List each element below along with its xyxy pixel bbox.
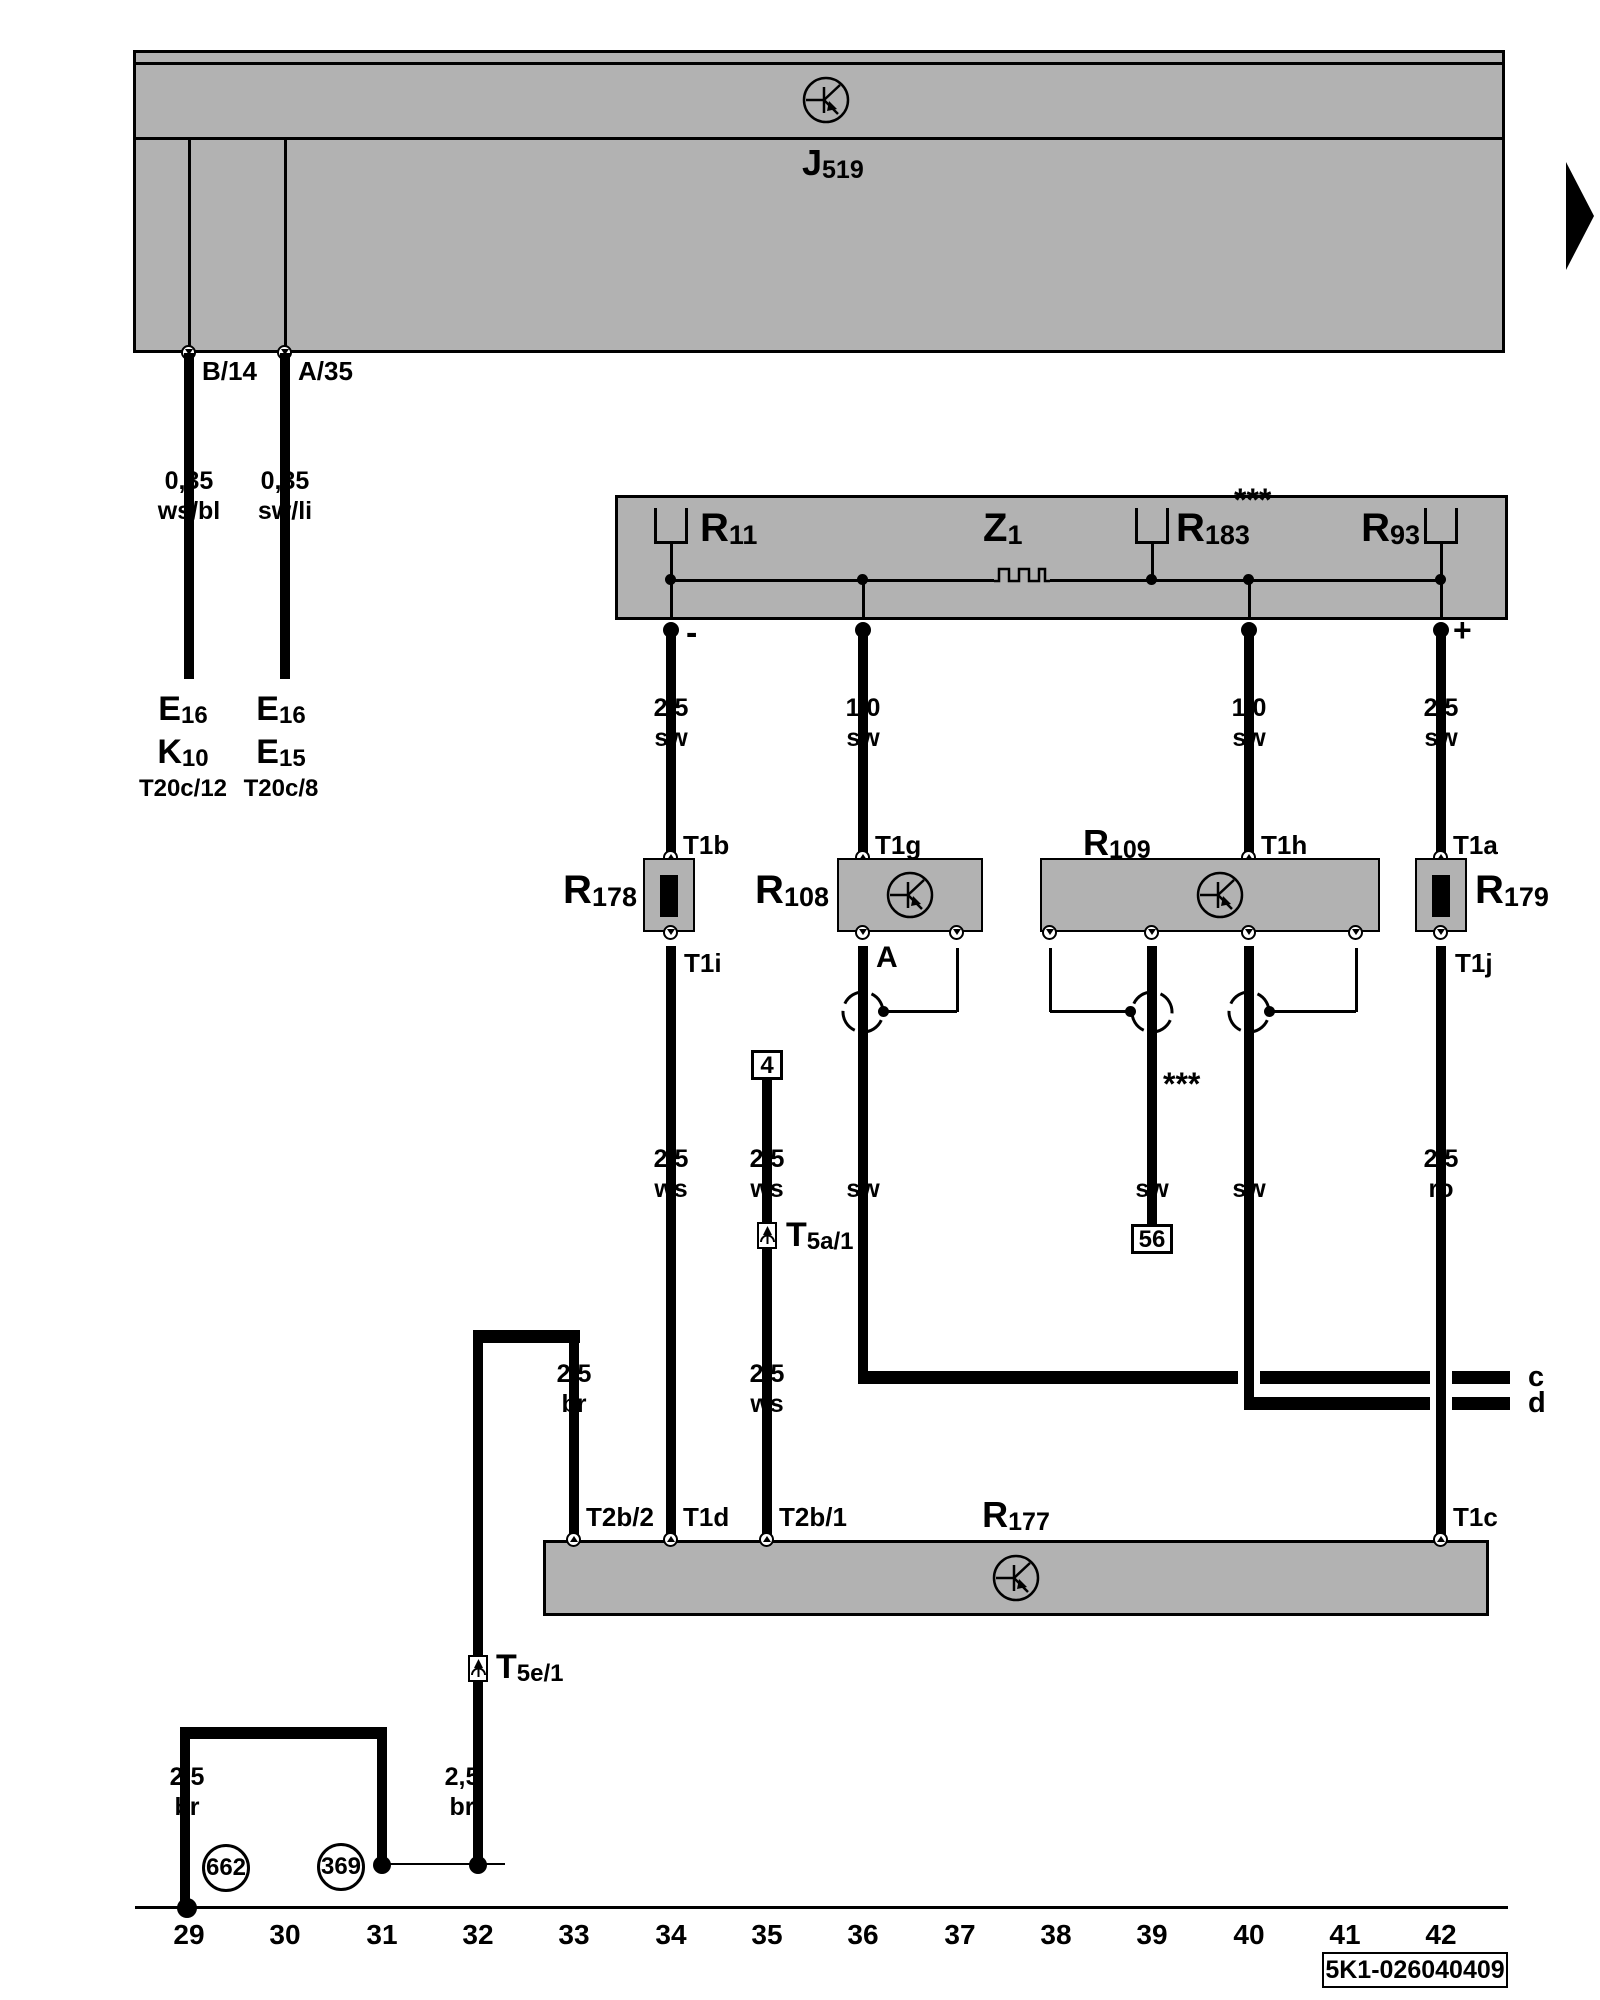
electronics-symbol-icon [884,869,936,921]
junction-box-56: 56 [1131,1224,1173,1254]
wire-track42-ro [1436,946,1446,1540]
r179-label: R179 [1475,868,1549,913]
ground-point-369: 369 [317,1843,365,1891]
junction-dot [665,574,676,585]
j519-label: J519 [802,142,864,185]
t5a1-label: T5a/1 [786,1216,854,1256]
lamp-tap-dot [1125,1006,1136,1017]
page-ref-line-d [1452,1397,1510,1410]
target-right-labels: E16 E15 T20c/8 [216,688,346,804]
minus-sign: - [686,616,697,652]
wire-track34-ws [666,946,676,1540]
junction-dot [1435,574,1446,585]
wire-label-ws25-t35: 2,5ws [717,1144,817,1204]
track-number: 40 [1219,1920,1279,1949]
track-number: 33 [544,1920,604,1949]
connector-cup-t2b2 [566,1532,581,1547]
connector-cup-r108-2 [949,925,964,940]
junction-dot [857,574,868,585]
connector-cup-t1d [663,1532,678,1547]
electronics-symbol-icon [1194,869,1246,921]
bus-line [671,579,1441,582]
wire-label-ws25-t34: 2,5ws [621,1144,721,1204]
jog-bar-upper [473,1330,580,1343]
stub-z1-out [862,580,865,620]
j519-top-inner-line [136,62,1502,65]
link-r108-h [884,1010,957,1013]
j519-header-separator [136,137,1502,140]
wire-label-br25-t32: 2,5br [412,1762,512,1822]
continuation-arrow-icon [1566,162,1594,270]
link-r109-right [1355,948,1358,1012]
lamp-tap-dot [1264,1006,1275,1017]
r178-label: R178 [543,868,637,913]
wire-track31-br [377,1733,387,1865]
wire-label-sw-t39: sw [1102,1174,1202,1204]
t5e1-label: T5e/1 [496,1648,564,1688]
electronics-symbol-icon [800,74,852,126]
j519-lead-a35 [284,139,287,353]
wire-label-sw10-a: 1,0sw [813,693,913,753]
wire-label-sw-t36: sw [813,1174,913,1204]
terminal-label-a35: A/35 [298,358,353,385]
inline-connector-t5e1-icon [468,1655,488,1682]
stars-note-mid: *** [1163,1068,1200,1102]
track-number: 31 [352,1920,412,1949]
r179-element-bar [1432,875,1450,917]
track-number: 37 [930,1920,990,1949]
wiring-diagram-canvas: J519 B/14 A/35 0,35 ws/bl 0,35 sw/li E16… [0,0,1600,2000]
plus-sign: + [1453,614,1472,648]
junction-dot [1243,574,1254,585]
aerial-symbol-r11 [654,508,688,544]
connector-cup-r109-4 [1348,925,1363,940]
wire-label-ro25-t42: 2,5ro [1391,1144,1491,1204]
j519-lead-b14 [188,139,191,353]
page-ref-line-c [1452,1371,1510,1384]
track-number: 36 [833,1920,893,1949]
connector-cup-t2b1 [759,1532,774,1547]
wire-label-sw-t40: sw [1199,1174,1299,1204]
connector-label-t2b2: T2b/2 [586,1504,654,1531]
jog-bar-lower [180,1727,387,1739]
terminal-label-b14: B/14 [202,358,257,385]
page-ref-label-d: d [1528,1388,1546,1418]
r11-label: R11 [700,506,757,551]
track-number: 42 [1411,1920,1471,1949]
connector-label-t2b1: T2b/1 [779,1504,847,1531]
track-number: 41 [1315,1920,1375,1949]
wire-label-sw25-a: 2,5sw [621,693,721,753]
r178-element-bar [660,875,678,917]
wire-label-sw10-b: 1,0sw [1199,693,1299,753]
earth-dot [177,1898,197,1918]
z1-label: Z1 [983,506,1022,551]
track-number: 35 [737,1920,797,1949]
junction-box-4: 4 [751,1050,783,1080]
link-r109-left [1049,948,1052,1012]
link-r108 [956,948,959,1012]
connector-label-t1c: T1c [1453,1504,1498,1531]
junction-dot [1146,574,1157,585]
connector-label-t1b: T1b [683,832,729,859]
page-ref-line-c [1260,1371,1430,1384]
r183-stars-note: *** [1234,484,1271,518]
diagram-code-box: 5K1-026040409 [1322,1952,1508,1988]
track-number: 39 [1122,1920,1182,1949]
lamp-tap-dot [878,1006,889,1017]
track-number: 29 [159,1920,219,1949]
electronics-symbol-icon [990,1552,1042,1604]
wire-label-ws-bl: 0,35 ws/bl [139,466,239,526]
connector-cup-r109-3 [1241,925,1256,940]
wire-label-sw-li: 0,35 sw/li [235,466,335,526]
connector-cup-t1i [663,925,678,940]
aerial-symbol-r183 [1135,508,1169,544]
r177-label: R177 [966,1494,1066,1537]
connector-label-t1i: T1i [684,950,722,977]
connector-label-t1j: T1j [1455,950,1493,977]
r108-label: R108 [735,868,829,913]
track-number: 32 [448,1920,508,1949]
connector-cup-a [855,925,870,940]
link-r109-right-h [1270,1010,1356,1013]
connector-cup-r109-2 [1144,925,1159,940]
wire-label-br25-t29: 2,5br [137,1762,237,1822]
wire-label-sw25-b: 2,5sw [1391,693,1491,753]
connector-cup-t1c [1433,1532,1448,1547]
page-ref-line-d [1244,1397,1430,1410]
connector-label-t1g: T1g [875,832,921,859]
link-r109-left-h [1050,1010,1131,1013]
r93-label: R93 [1324,506,1420,551]
connector-label-t1h: T1h [1261,832,1307,859]
ground-junction-dot [469,1856,487,1874]
resistor-symbol-z1 [994,566,1050,594]
connector-label-t1d: T1d [683,1504,729,1531]
earth-baseline [135,1906,1508,1909]
connector-cup-t1j [1433,925,1448,940]
page-ref-line-c [858,1371,1238,1384]
connector-label-t1a: T1a [1453,832,1498,859]
ground-point-662: 662 [202,1844,250,1892]
wire-label-br25-t33: 2,5br [524,1359,624,1419]
track-number: 30 [255,1920,315,1949]
connector-label-a: A [876,942,898,974]
inline-connector-t5a1-icon [757,1222,777,1249]
stub-t1h-out [1248,580,1251,620]
aerial-symbol-r93 [1424,508,1458,544]
track-number: 38 [1026,1920,1086,1949]
track-number: 34 [641,1920,701,1949]
connector-cup-r109-1 [1042,925,1057,940]
wire-label-ws25-t35-lower: 2,5ws [717,1359,817,1419]
